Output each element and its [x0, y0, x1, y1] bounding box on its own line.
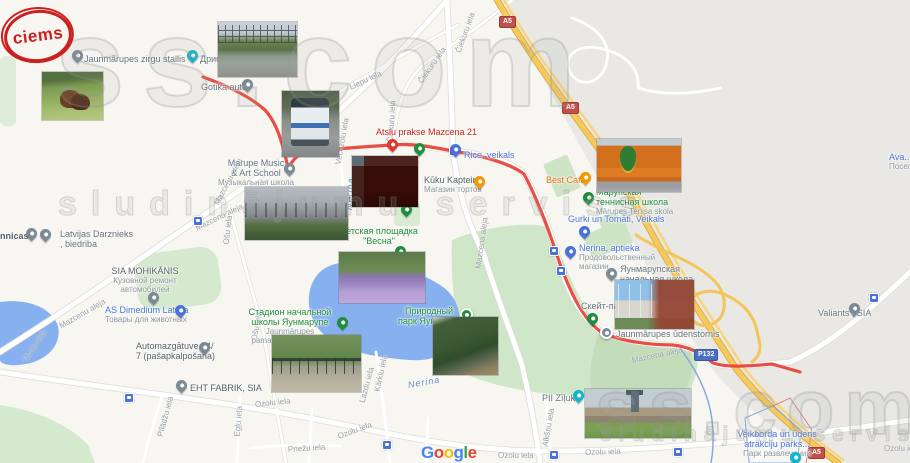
photo-playground[interactable]: [339, 252, 425, 303]
road-badge-a5: A5: [562, 102, 579, 114]
poi-label-rice[interactable]: Rice, veikals: [464, 150, 515, 160]
google-logo[interactable]: Google: [421, 443, 477, 463]
flag-poles: [618, 284, 654, 318]
horse-figure: [71, 94, 89, 110]
photo-park-pond[interactable]: [433, 317, 498, 375]
google-letter: o: [444, 443, 454, 462]
poi-label-valiants[interactable]: Valiants , SIA: [818, 308, 871, 318]
photo-pavilion[interactable]: [218, 22, 297, 77]
photo-water-tower[interactable]: [585, 389, 691, 438]
tower-body: [631, 391, 639, 412]
poi-label-zirgu-stallis[interactable]: Jaunmārupes zirgu stallis: [84, 54, 186, 64]
poi-label-eht-fabrik[interactable]: EHT FABRIK, SIA: [190, 383, 262, 393]
poi-label-atslu-prakse[interactable]: Atslu prakse Mazcena 21: [376, 127, 477, 137]
photo-orange-store[interactable]: [597, 139, 681, 192]
google-letter: G: [421, 443, 434, 462]
photo-stadium-field[interactable]: [272, 335, 361, 392]
edge-green: [0, 56, 16, 126]
poi-label-mohikanis[interactable]: SIA MOHIKĀNIS Кузовной ремонт автомобиле…: [100, 266, 190, 294]
poi-label-vesna[interactable]: Детская площадка "Весна": [340, 226, 418, 246]
road-badge-p132: P132: [694, 349, 718, 361]
photo-horse-pasture[interactable]: [42, 72, 103, 120]
poi-label-darznieks[interactable]: Latvijas Darznieks , biedriba: [60, 229, 133, 249]
road-badge-a5: A5: [499, 16, 516, 28]
corner-green: [0, 405, 95, 463]
photo-music-school-building[interactable]: [245, 187, 348, 240]
poi-label-nnicas[interactable]: nnicas: [0, 231, 29, 241]
poi-label-marupe-music[interactable]: Marupe Music & Art School Музыкальная шк…: [218, 158, 294, 187]
bus-stop-icon[interactable]: [869, 293, 879, 303]
udenstornis-pin[interactable]: [600, 326, 613, 339]
bus-stop-icon[interactable]: [124, 393, 134, 403]
street-label: Ozolu iela: [498, 451, 534, 460]
poi-label-udenstornis[interactable]: Jaunmārupes ūdenstornis: [616, 329, 720, 339]
steel-truss: [218, 25, 297, 43]
google-letter: e: [468, 443, 477, 462]
bus-stop-icon[interactable]: [193, 216, 203, 226]
window-row: [245, 203, 348, 217]
google-letter: g: [454, 443, 464, 462]
ciems-logo-text: ciems: [12, 23, 65, 49]
poi-label-gotika-auto[interactable]: Gotika auto: [201, 82, 247, 92]
poi-label-avangards[interactable]: Ava... Посел...: [889, 152, 910, 171]
map-base-layer: [0, 0, 910, 463]
bus-stop-icon[interactable]: [673, 447, 683, 457]
street-label: Ozolu iela: [884, 444, 910, 453]
bus-figure: [291, 98, 329, 147]
store-logo-shield: [620, 146, 637, 170]
bus-stop-icon[interactable]: [549, 450, 559, 460]
street-label: Ozolu iela: [585, 447, 621, 457]
photo-bus[interactable]: [282, 91, 339, 157]
photo-brick-building[interactable]: [352, 156, 418, 207]
photo-primary-school[interactable]: [615, 280, 694, 329]
map-canvas[interactable]: Mazcenu aleja Mazcenu aleja Mazcenu alej…: [0, 0, 910, 463]
poi-label-gurki[interactable]: Gurki un Tomāti, Veikals: [568, 214, 664, 224]
bus-stop-icon[interactable]: [549, 246, 559, 256]
poi-label-veikbords[interactable]: Veikborda un ūdens atrakciju parks... Па…: [736, 429, 818, 458]
fence-posts: [272, 358, 361, 374]
bus-stop-icon[interactable]: [556, 266, 566, 276]
bus-stop-icon[interactable]: [382, 440, 392, 450]
google-letter: o: [434, 443, 444, 462]
